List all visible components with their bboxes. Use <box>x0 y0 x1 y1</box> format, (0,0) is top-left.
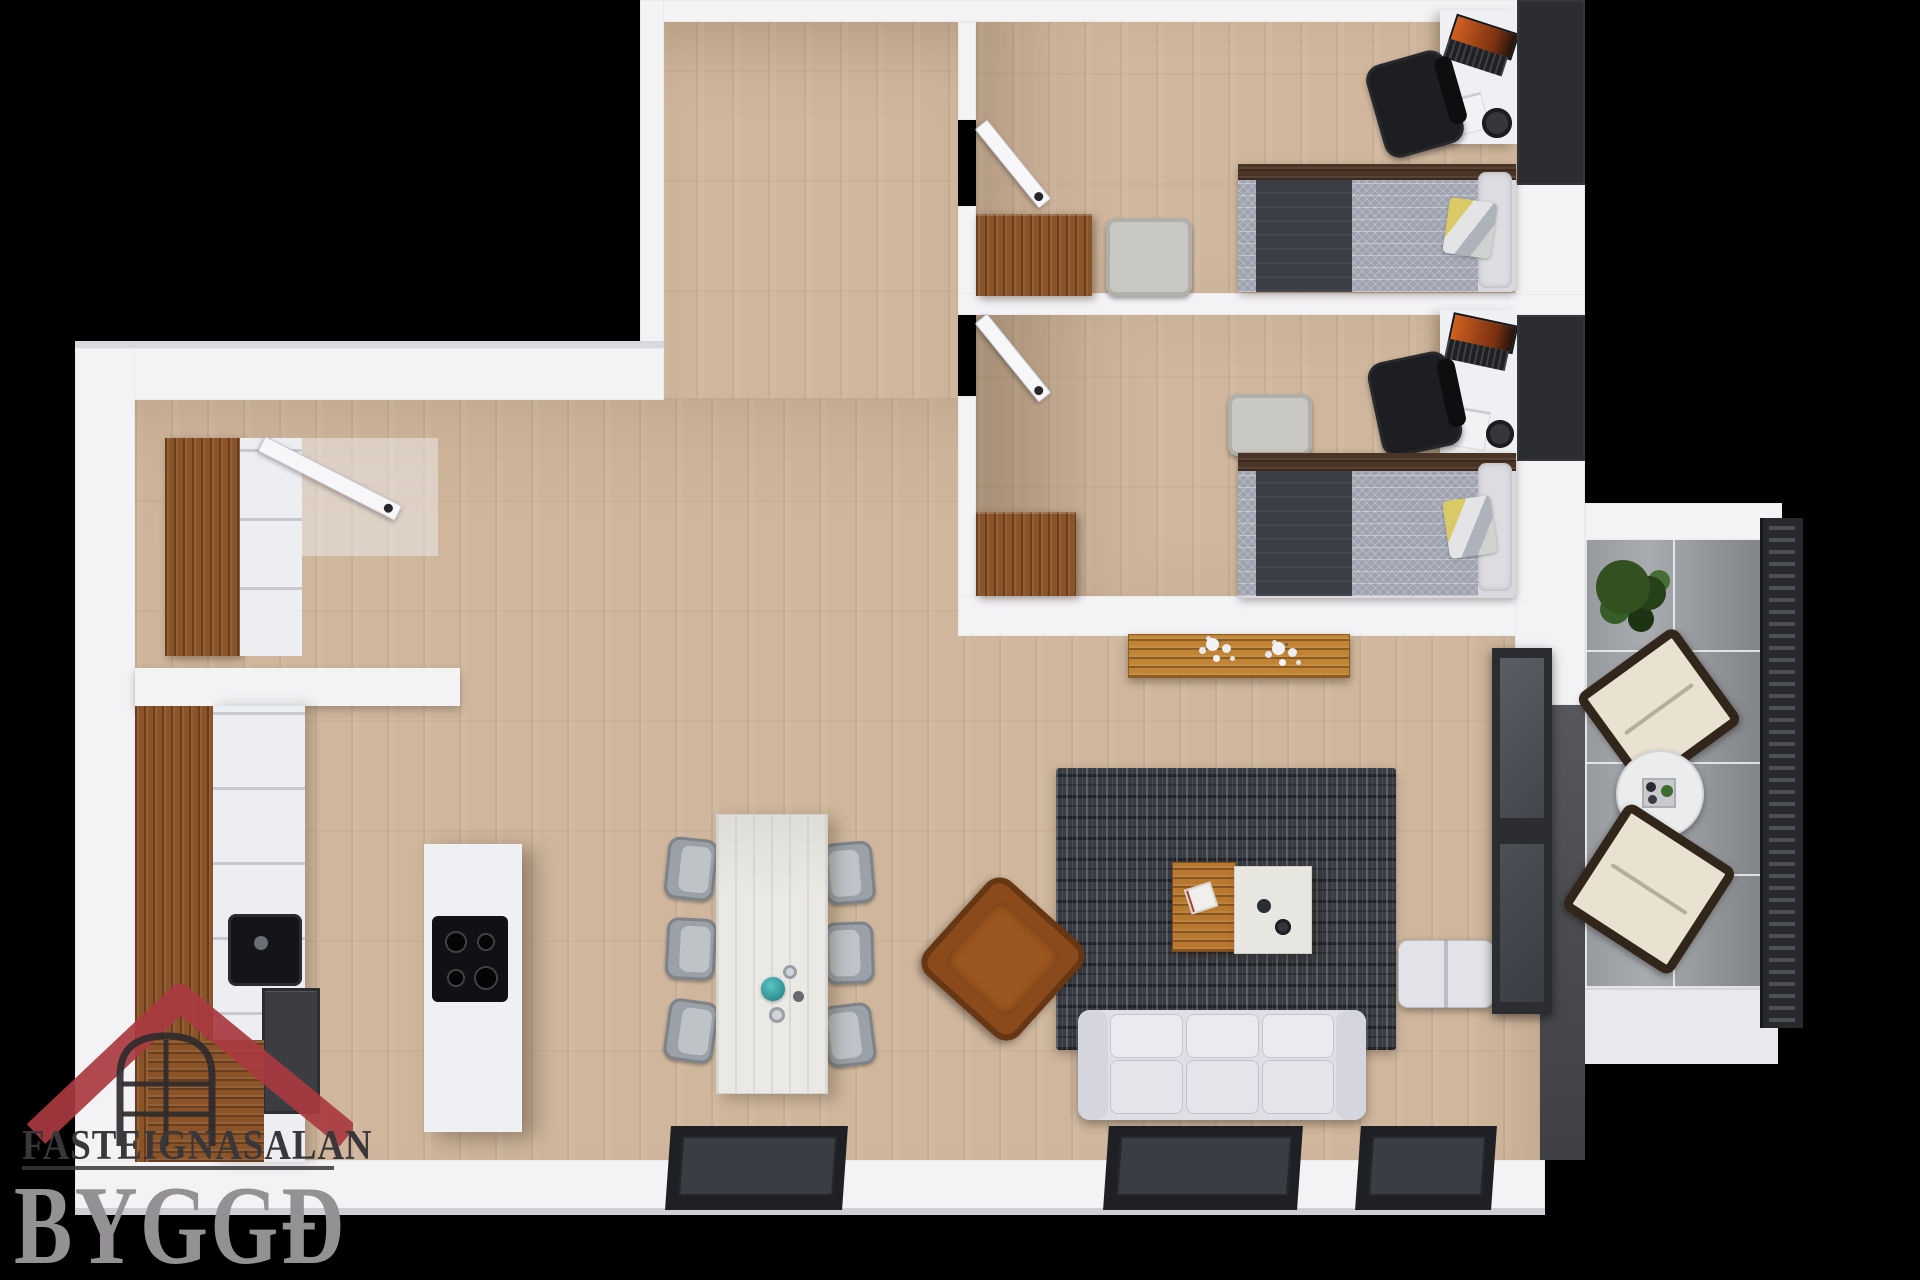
chair-cushion <box>679 925 711 973</box>
bed-throw-blanket <box>1256 471 1352 596</box>
cushion-seam <box>1610 863 1687 915</box>
wall-top-living <box>75 348 664 400</box>
balcony-plant <box>1596 560 1650 614</box>
window-threshold-2 <box>1103 1126 1303 1210</box>
chair-cushion <box>677 1007 713 1057</box>
wall-hall-segment-c <box>958 396 976 598</box>
bed-accent-pillow <box>1442 197 1497 259</box>
glass-2 <box>769 1007 785 1023</box>
island-cooktop <box>432 916 508 1002</box>
dining-chair-right-3 <box>820 1001 877 1069</box>
dining-chair-right-1 <box>821 840 876 906</box>
sofa-back-cushion <box>1186 1014 1259 1058</box>
wall-right-upper <box>1515 183 1585 295</box>
kitchen-sink <box>228 914 302 986</box>
armchair-cushion <box>942 898 1063 1019</box>
sofa-back-cushion <box>1262 1014 1334 1058</box>
book <box>1184 881 1219 914</box>
ottoman <box>1398 940 1494 1008</box>
kitchen-divider-counter <box>135 668 460 706</box>
chair-cushion <box>828 849 862 897</box>
unit-glass-panel-top <box>1500 658 1544 818</box>
bedroom1-desk-clock <box>1482 108 1512 138</box>
coffee-table-wood <box>1172 862 1236 952</box>
window-threshold-1 <box>665 1126 848 1210</box>
entry-closet-white-front <box>240 438 302 656</box>
bedroom1-wardrobe <box>1517 0 1585 185</box>
wall-wing-left <box>640 0 664 400</box>
floor-plan-render: FASTEIGNASALAN BYGGÐ <box>0 0 1920 1280</box>
mini-plant <box>1661 785 1673 797</box>
cup-2 <box>1275 919 1291 935</box>
flower-arrangement-1 <box>1206 638 1219 651</box>
sofa-seat-cushion <box>1186 1060 1259 1114</box>
dining-table <box>716 814 828 1094</box>
teal-bowl <box>761 977 785 1001</box>
cup-dark-1 <box>1646 782 1656 792</box>
dining-chair-left-3 <box>662 997 720 1065</box>
bed-headboard-rail <box>1238 164 1516 180</box>
bedroom1-dresser <box>976 214 1092 296</box>
bedroom2-dresser <box>976 512 1076 596</box>
flower-arrangement-2 <box>1272 642 1285 655</box>
glass-1 <box>783 965 797 979</box>
sofa-seat-cushion <box>1262 1060 1334 1114</box>
chair-cushion <box>829 930 861 977</box>
chair-cushion <box>678 845 713 894</box>
faucet <box>254 936 268 950</box>
coffee-table-marble <box>1234 866 1312 954</box>
bedroom1-armchair <box>1106 218 1192 296</box>
cushion-seam <box>1624 683 1694 735</box>
sofa <box>1078 1010 1366 1120</box>
watermark-brand-text: BYGGÐ <box>14 1170 346 1280</box>
sofa-seat-cushion <box>1110 1060 1183 1114</box>
door-handle <box>382 502 394 514</box>
bedroom2-wardrobe <box>1517 315 1585 461</box>
bed-accent-pillow <box>1442 495 1498 559</box>
unit-glass-panel-bottom <box>1500 844 1544 1002</box>
bedroom2-desk-clock <box>1486 420 1514 448</box>
wall-balcony-top <box>1585 503 1782 540</box>
bed-throw-blanket <box>1256 180 1352 292</box>
railing-slats <box>1769 524 1795 1022</box>
chair-cushion <box>827 1011 862 1060</box>
entry-closet-wood-panel <box>165 438 240 656</box>
threshold-glass <box>1368 1136 1486 1196</box>
table-tray <box>1642 778 1676 808</box>
wall-hall-segment-a <box>958 22 976 120</box>
balcony-ledge <box>1585 988 1778 1064</box>
wall-bedroom2-living <box>958 596 1540 636</box>
dining-chair-right-2 <box>823 921 875 985</box>
bedroom2-armchair <box>1228 394 1312 456</box>
dining-chair-left-2 <box>664 917 717 982</box>
window-threshold-3 <box>1355 1126 1497 1210</box>
watermark-agency-text: FASTEIGNASALAN <box>22 1122 373 1170</box>
glass-3 <box>793 991 804 1002</box>
sofa-armrest-right <box>1336 1010 1366 1120</box>
threshold-glass <box>1116 1136 1292 1196</box>
balcony-railing <box>1760 518 1803 1028</box>
bed-headboard-rail <box>1238 453 1516 471</box>
sofa-back-cushion <box>1110 1014 1183 1058</box>
cup-1 <box>1257 899 1271 913</box>
media-fireplace-unit <box>1492 648 1552 1014</box>
console-table <box>1128 634 1350 678</box>
hallway-floor <box>660 22 958 402</box>
threshold-glass <box>678 1136 837 1196</box>
cup-dark-2 <box>1648 795 1657 804</box>
door-handle <box>1032 384 1045 397</box>
sofa-armrest-left <box>1078 1010 1108 1120</box>
bedroom2-bed <box>1238 453 1516 598</box>
bedroom1-bed <box>1238 164 1516 292</box>
dining-chair-left-1 <box>663 836 719 903</box>
door-handle <box>1032 190 1045 203</box>
